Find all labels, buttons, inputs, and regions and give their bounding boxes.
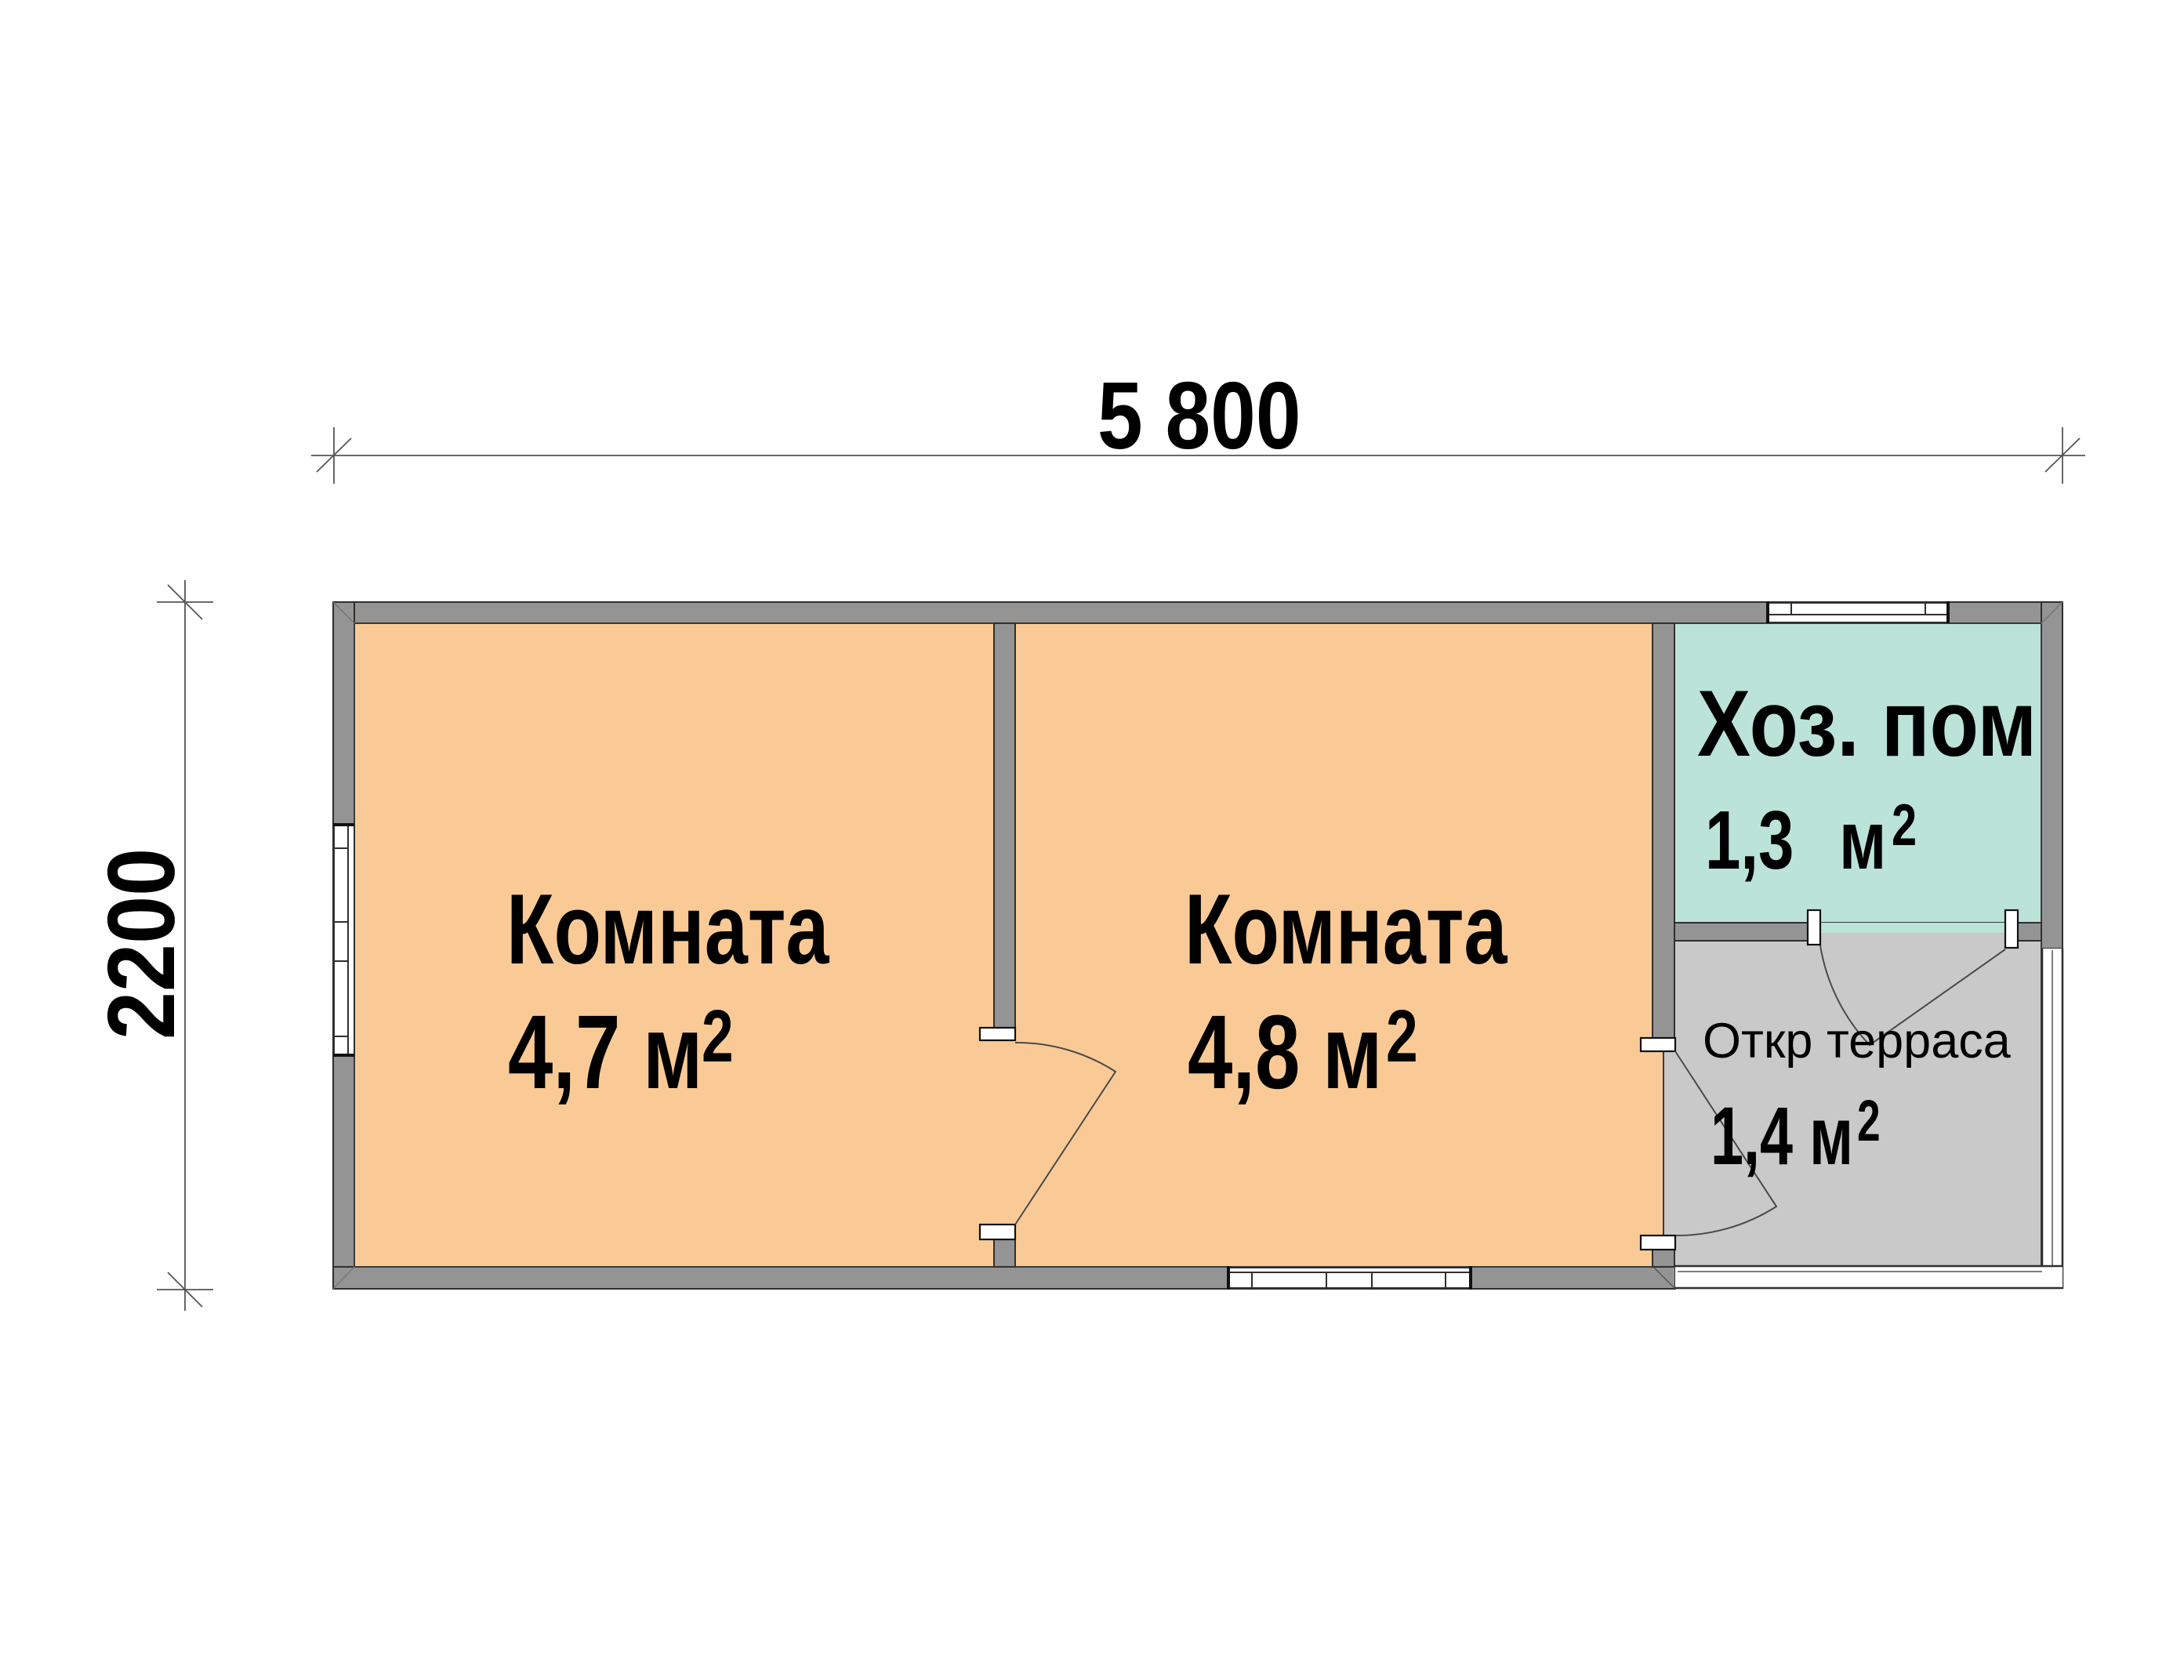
svg-text:Комната: Комната	[506, 874, 830, 985]
svg-text:2: 2	[1386, 994, 1418, 1077]
svg-text:5 800: 5 800	[1097, 362, 1301, 469]
svg-text:4,7 м: 4,7 м	[508, 994, 702, 1111]
svg-text:1,4 м: 1,4 м	[1711, 1090, 1853, 1182]
svg-text:Хоз. пом: Хоз. пом	[1697, 670, 2037, 776]
svg-text:2200: 2200	[88, 848, 195, 1040]
svg-text:м: м	[1839, 794, 1886, 887]
svg-text:1,3: 1,3	[1705, 794, 1794, 887]
svg-text:4,8 м: 4,8 м	[1188, 994, 1382, 1111]
svg-text:Откр терраса: Откр терраса	[1703, 1014, 2012, 1069]
svg-text:2: 2	[1892, 793, 1917, 858]
svg-text:Комната: Комната	[1185, 874, 1508, 985]
svg-text:2: 2	[702, 994, 734, 1077]
svg-text:2: 2	[1857, 1088, 1881, 1153]
